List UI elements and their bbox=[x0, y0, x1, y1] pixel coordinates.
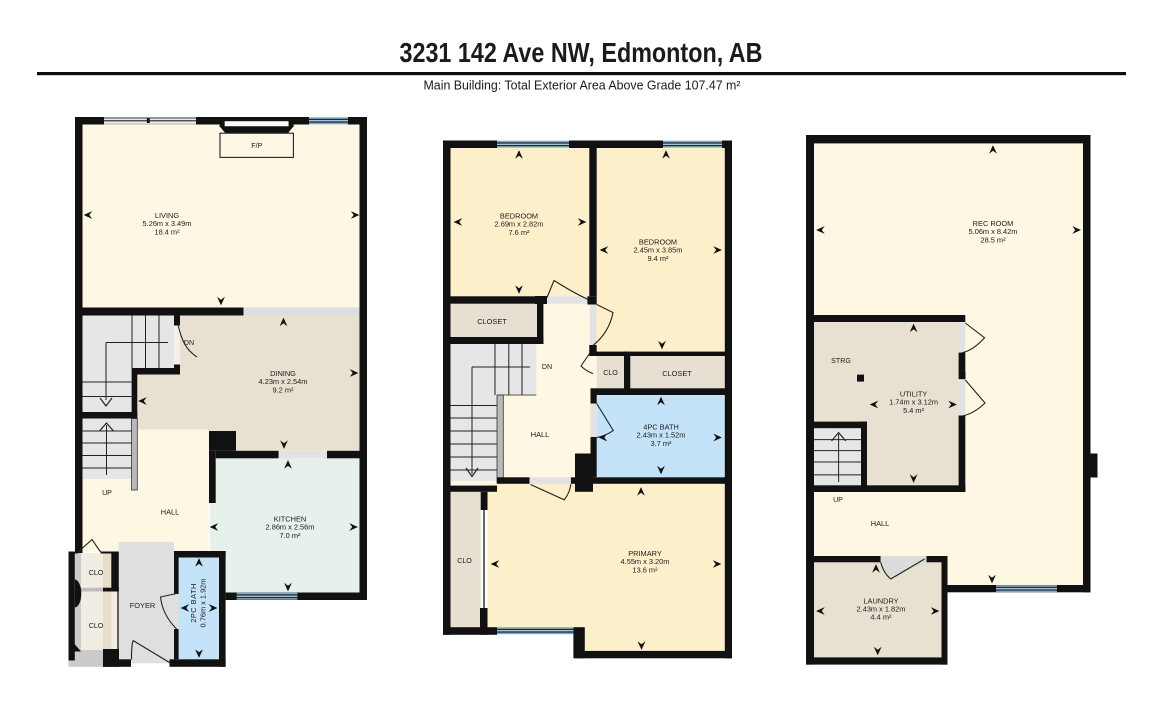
svg-text:3231 142 Ave NW, Edmonton, AB: 3231 142 Ave NW, Edmonton, AB bbox=[400, 37, 763, 68]
svg-text:UP: UP bbox=[102, 489, 112, 497]
svg-text:4.4 m²: 4.4 m² bbox=[871, 613, 892, 622]
svg-text:7.0 m²: 7.0 m² bbox=[280, 531, 301, 540]
svg-text:DN: DN bbox=[542, 363, 552, 371]
svg-text:Main Building: Total Exterior: Main Building: Total Exterior Area Above… bbox=[424, 78, 742, 93]
svg-text:STRG: STRG bbox=[831, 357, 851, 365]
svg-text:F/P: F/P bbox=[251, 142, 262, 150]
svg-text:CLOSET: CLOSET bbox=[662, 369, 692, 378]
svg-text:5.4 m²: 5.4 m² bbox=[903, 406, 924, 415]
svg-text:3.7 m²: 3.7 m² bbox=[651, 439, 672, 448]
svg-text:28.5 m²: 28.5 m² bbox=[980, 235, 1006, 244]
svg-text:CLOSET: CLOSET bbox=[477, 317, 507, 326]
svg-text:HALL: HALL bbox=[871, 519, 890, 528]
svg-text:UP: UP bbox=[833, 496, 843, 504]
svg-text:CLO: CLO bbox=[89, 622, 104, 630]
svg-text:9.4 m²: 9.4 m² bbox=[648, 254, 669, 263]
svg-text:18.4 m²: 18.4 m² bbox=[154, 227, 180, 236]
svg-text:DN: DN bbox=[184, 339, 194, 347]
svg-text:CLO: CLO bbox=[89, 569, 104, 577]
svg-text:0.76m x 1.92m: 0.76m x 1.92m bbox=[198, 579, 207, 628]
svg-text:HALL: HALL bbox=[161, 508, 180, 517]
svg-text:9.2 m²: 9.2 m² bbox=[273, 385, 294, 394]
svg-text:CLO: CLO bbox=[603, 369, 618, 377]
svg-text:FOYER: FOYER bbox=[130, 601, 155, 610]
svg-text:CLO: CLO bbox=[457, 557, 472, 565]
svg-text:HALL: HALL bbox=[531, 430, 550, 439]
svg-text:2PC BATH: 2PC BATH bbox=[189, 583, 198, 623]
svg-text:13.6 m²: 13.6 m² bbox=[632, 565, 658, 574]
svg-text:7.6 m²: 7.6 m² bbox=[509, 228, 530, 237]
